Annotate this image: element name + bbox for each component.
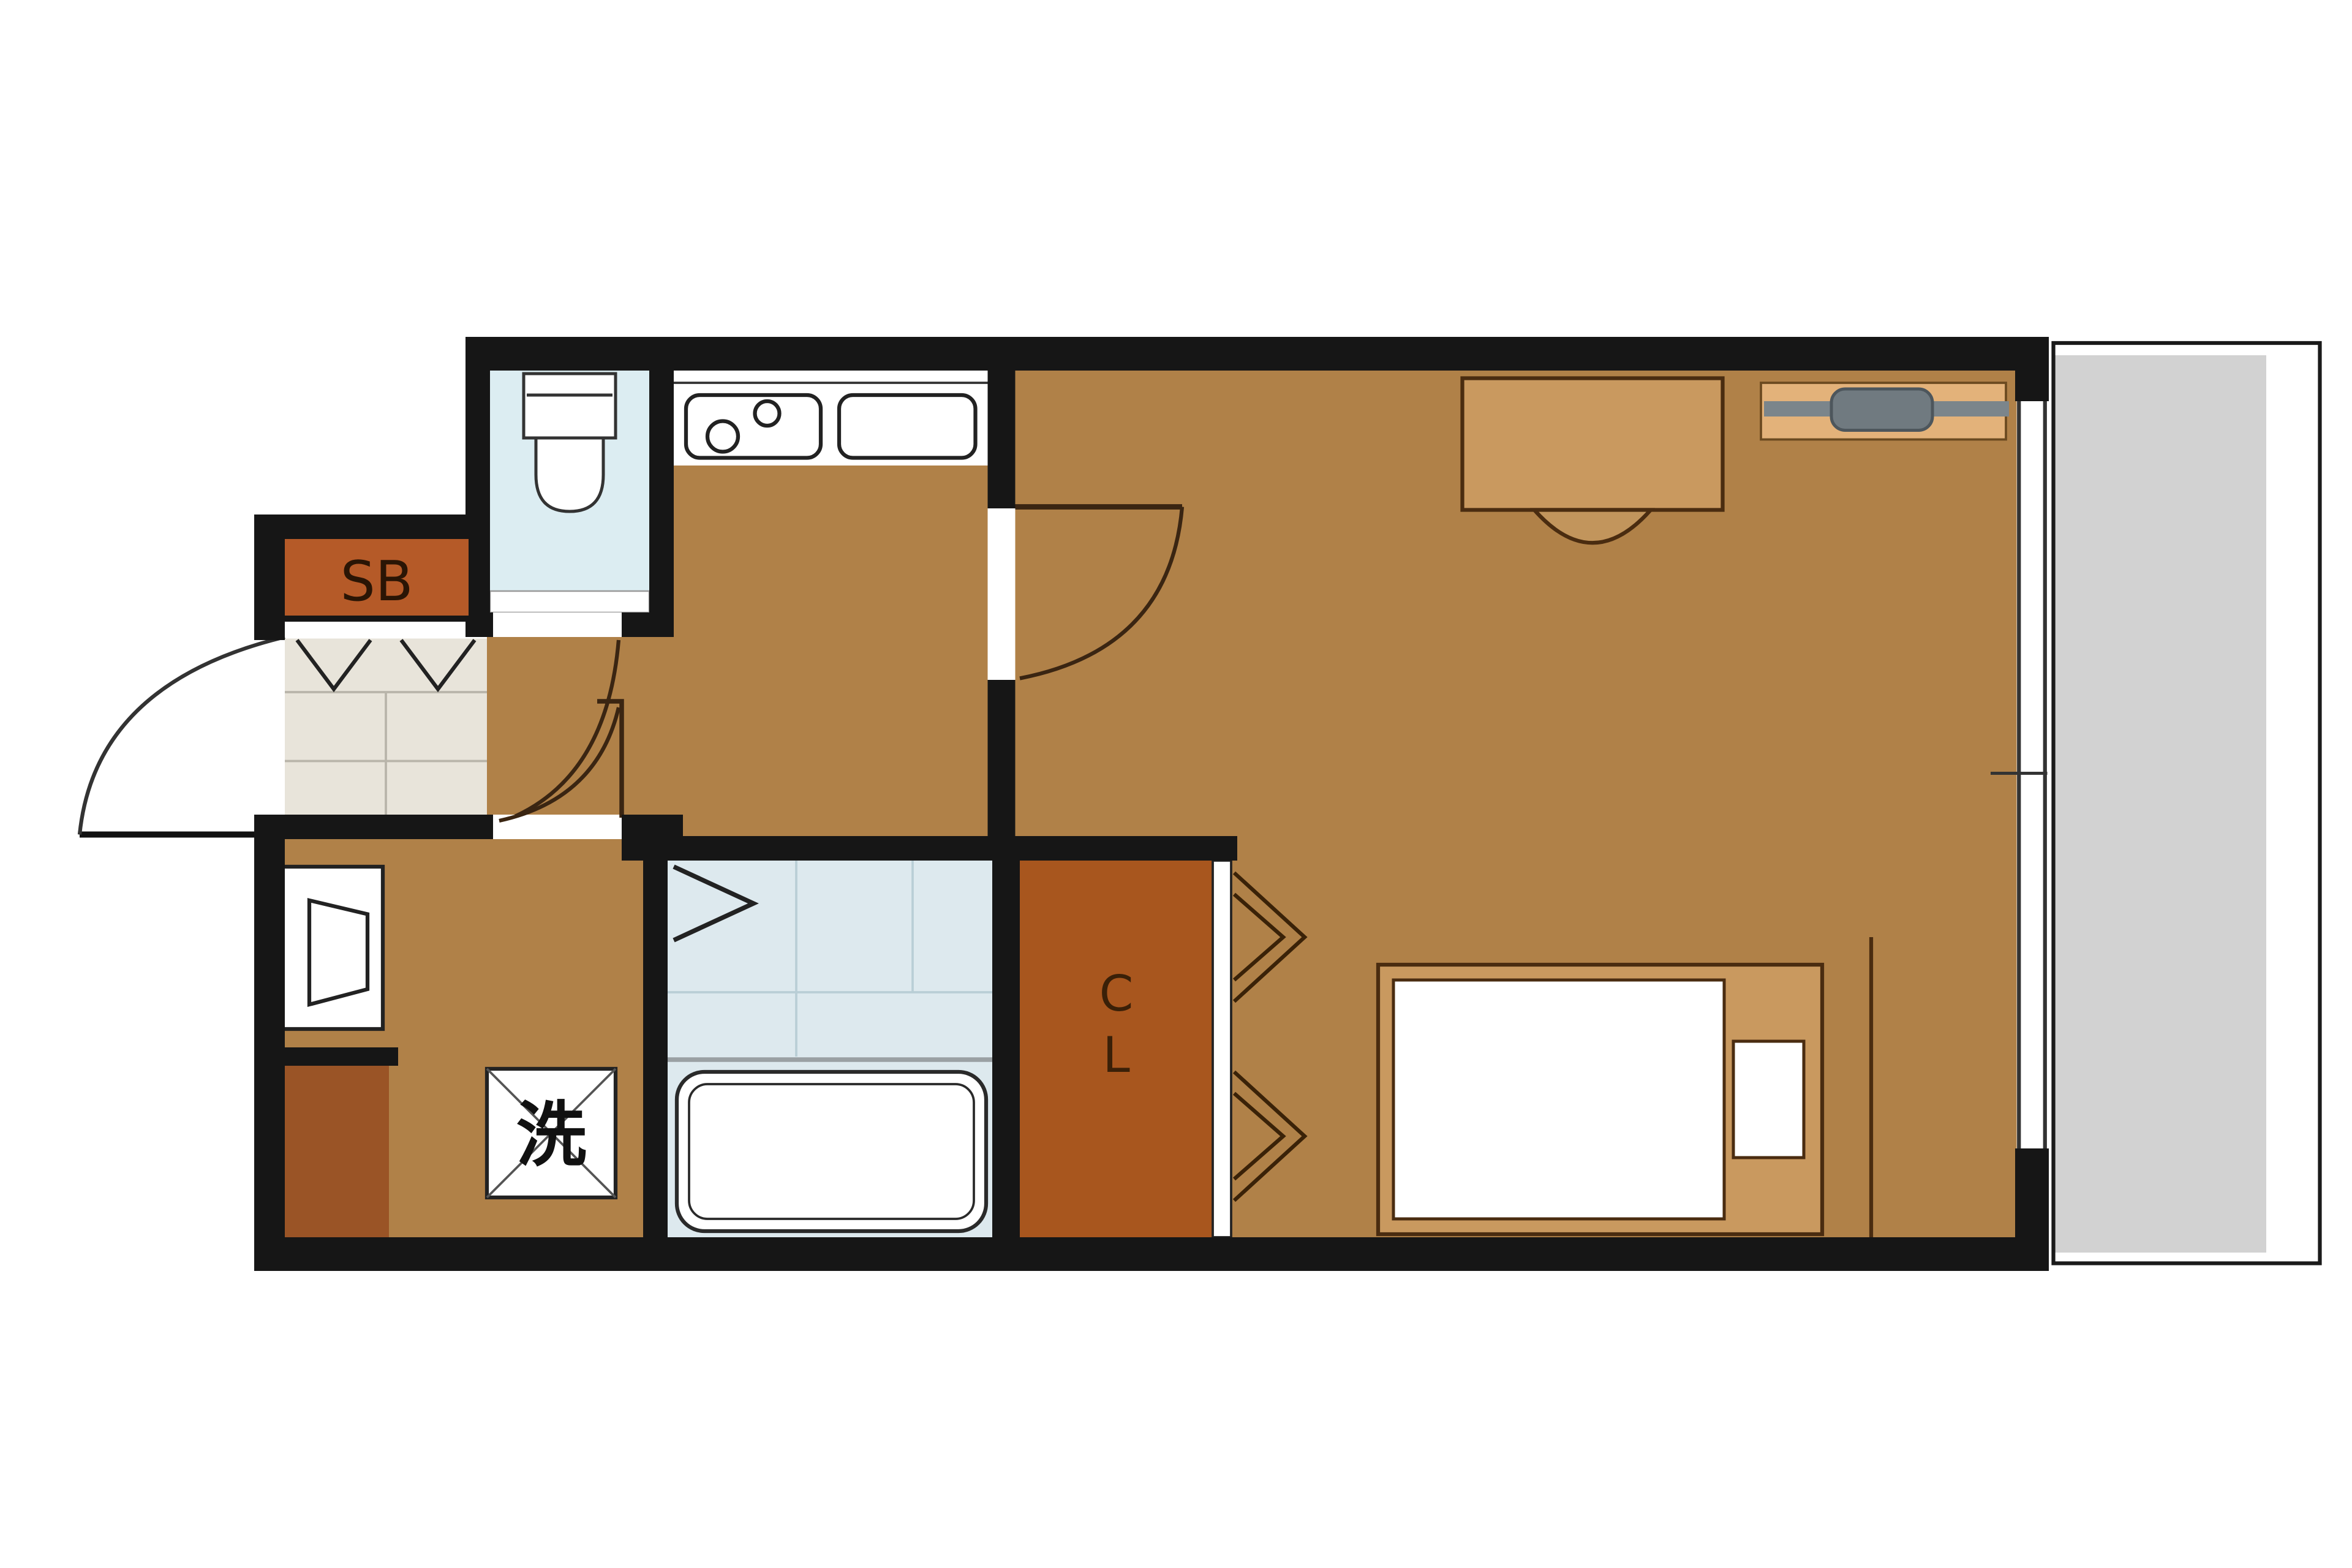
wall-right-upper [2015,337,2049,401]
bathtub [677,1072,986,1231]
bed [1378,965,1822,1234]
wall-toilet-right [649,337,674,637]
toilet-doorway [493,612,622,637]
tv-board [1761,383,2009,440]
main-room-doorway [988,508,1016,680]
bathtub-icon [677,1072,986,1231]
floor-plan-drawing: 洗 [0,0,2352,1568]
entrance-door-swing-arc [80,637,285,835]
toilet-tank-icon [524,374,616,438]
bed-pillow [1733,1041,1804,1158]
wall-kitchen-main-lower [988,680,1016,839]
closet-label-line1: C [1099,965,1134,1022]
washbasin-bowl-icon [309,900,367,1005]
desk [1463,379,1723,510]
wall-genkan-washroom [254,815,493,839]
wall-stub [622,815,683,839]
stove-icon [686,395,821,458]
wall-left-lower [254,835,285,1272]
wall-kitchen-main-upper [988,337,1016,508]
washing-machine-label: 洗 [516,1095,586,1177]
wall-right-lower [2015,1148,2049,1271]
washing-machine-area: 洗 [487,1069,616,1197]
kitchen-counter [674,371,988,466]
washroom-partition-wall [282,1047,398,1066]
washbasin [282,867,383,1029]
wall-shoebox-cap [254,514,490,536]
entrance-opening [254,640,285,835]
toilet-door [490,591,649,612]
closet-door-panel [1213,861,1231,1237]
washroom-counter [282,1066,389,1237]
bed-mattress [1393,980,1724,1219]
wall-top [466,337,2049,371]
wall-bathroom-left [643,836,668,1271]
kitchen-sink-icon [839,395,976,458]
shoe-box: SB [282,536,472,619]
closet-label-line2: L [1102,1027,1130,1084]
wall-bottom [254,1237,2049,1271]
floor-plan-page: 洗 [0,0,2352,1568]
hallway-floor [487,612,988,839]
wall-stub [622,612,674,637]
tv-icon [1831,389,1932,431]
stove-burner-icon [755,401,780,426]
wall-bath-closet-top [622,836,1237,861]
balcony-floor [2055,355,2266,1253]
toilet-bowl-icon [536,438,603,511]
wall-closet-left [992,836,1020,1271]
stove-burner-icon [707,421,738,452]
shoe-box-label: SB [341,549,413,614]
